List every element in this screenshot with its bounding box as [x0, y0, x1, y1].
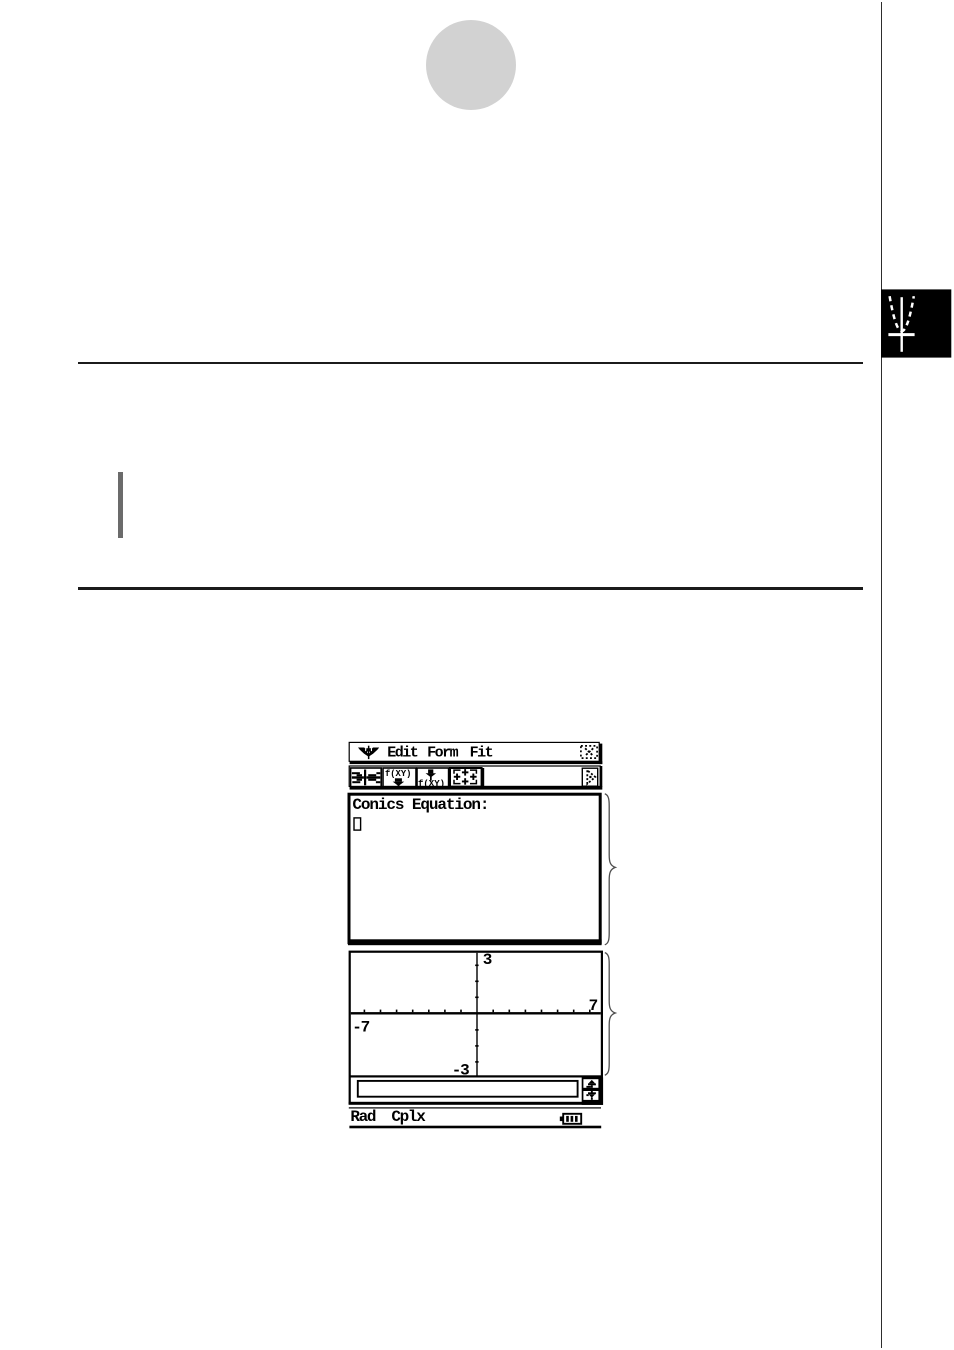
svg-text:Cplx: Cplx — [391, 1108, 426, 1126]
svg-text:Edit: Edit — [387, 744, 418, 761]
svg-text:Rad: Rad — [350, 1108, 376, 1126]
svg-text:7: 7 — [589, 997, 599, 1015]
svg-text:Conics Equation:: Conics Equation: — [352, 796, 488, 814]
svg-text:3: 3 — [483, 951, 493, 969]
svg-text:Fit: Fit — [470, 744, 493, 761]
svg-text:-7: -7 — [352, 1018, 369, 1036]
svg-text:Form: Form — [427, 744, 459, 761]
svg-text:f(XY): f(XY) — [385, 769, 411, 779]
svg-text:f(XY): f(XY) — [418, 779, 445, 789]
